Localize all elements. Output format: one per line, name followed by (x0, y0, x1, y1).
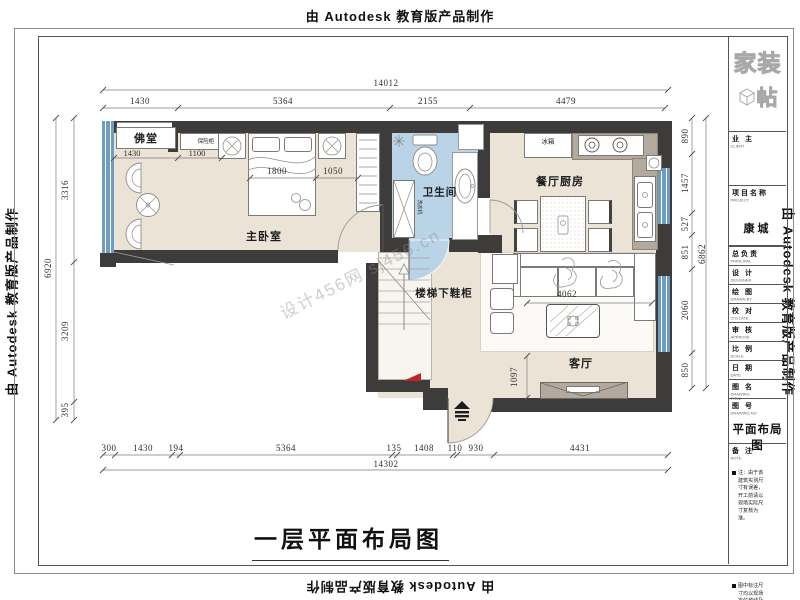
side-seat-2 (490, 312, 514, 334)
sheet-no-label: 图 号 (729, 399, 786, 411)
titleblock-client: 业 主 CLIENT (729, 132, 786, 186)
titleblock-rows: 总负责PRINCIPAL设 计DESIGNER绘 图DRAWN BY校 对COL… (729, 246, 786, 398)
nightstand-left (218, 133, 246, 159)
fridge (524, 133, 572, 158)
titleblock-row: 审 核APPROVE (729, 322, 786, 341)
dining-chair-4 (588, 228, 612, 252)
dining-chair-1 (514, 200, 538, 224)
wall-band-bottom (114, 250, 338, 263)
titleblock-row: 日 期DATE (729, 360, 786, 379)
sofa-seat-1 (520, 267, 558, 297)
titleblock-sheet: 图 号 DRAWING NO 平面布局图 (729, 398, 786, 444)
window-right-2 (658, 276, 670, 352)
note-item: 图中标注尺寸均以现场定位放线及工程实测尺寸为准。 (732, 582, 784, 600)
dining-table (540, 196, 586, 252)
logo-text-bottom: 帖 (757, 82, 779, 112)
client-label: 业 主 (729, 132, 786, 144)
buddha-label-box (116, 127, 176, 149)
plot-stamp-top: 由 Autodesk 教育版产品制作 (306, 6, 494, 25)
sofa-chaise (634, 253, 656, 321)
titleblock-row: 设 计DESIGNER (729, 265, 786, 284)
wardrobe (356, 133, 380, 212)
note-bullet (732, 584, 736, 588)
pillow-left (252, 137, 280, 152)
bath-window-niche (458, 124, 484, 150)
stove (578, 135, 644, 156)
titleblock-project: 项目名称 PROJECT 康城 (729, 186, 786, 246)
project-label: 项目名称 (729, 186, 786, 198)
titleblock-row: 校 对COLLATE (729, 303, 786, 322)
plot-stamp-bottom: 由 Autodesk 教育版产品制作 (306, 578, 494, 597)
sofa-seat-2 (558, 267, 596, 297)
client-label-en: CLIENT (729, 144, 758, 149)
cad-sheet: 由 Autodesk 教育版产品制作 由 Autodesk 教育版产品制作 由 … (0, 0, 800, 600)
titleblock-row: 绘 图DRAWN BY (729, 284, 786, 303)
sink-basin-1 (637, 182, 653, 208)
wall-bath-bottom-right (449, 238, 490, 252)
project-label-en: PROJECT (729, 198, 758, 203)
note-label-en: NOTE (729, 456, 758, 461)
window-right-1 (658, 168, 670, 224)
titleblock-notes: 备 注 NOTE 注：由于该建筑实测尺寸有误差，开工前请以现场实际尺寸复核为准。… (729, 444, 786, 563)
dining-chair-2 (514, 228, 538, 252)
side-table-lamp (492, 254, 518, 284)
titleblock-row: 比 例SCALE (729, 341, 786, 360)
titleblock-row: 图 名DRAWING TITLE (729, 379, 786, 398)
project-value: 康城 (729, 220, 786, 236)
note-text: 图中标注尺寸均以现场定位放线及工程实测尺寸为准。 (738, 582, 764, 600)
title-block: 家装 帖 业 主 CLIENT 项目名称 PROJECT 康城 总负责PRINC… (728, 36, 786, 564)
wall-entry-jog (423, 388, 448, 410)
cube-logo-icon (737, 87, 757, 107)
wall-stair-bottom (366, 378, 430, 392)
note-item: 注：由于该建筑实测尺寸有误差，开工前请以现场实际尺寸复核为准。 (732, 469, 784, 564)
washing-machine (393, 180, 415, 238)
tv (566, 386, 600, 393)
wall-stair-left (366, 263, 378, 392)
wall-living-bottom (488, 398, 672, 412)
titleblock-row: 总负责PRINCIPAL (729, 246, 786, 265)
wall-bedroom-bath (380, 121, 392, 253)
titleblock-logo: 家装 帖 (729, 36, 786, 132)
logo-text-top: 家装 (729, 44, 786, 78)
pillow-right (284, 137, 312, 152)
side-seat-1 (490, 288, 514, 310)
sink-basin-2 (637, 212, 653, 238)
note-text: 注：由于该建筑实测尺寸有误差，开工前请以现场实际尺寸复核为准。 (738, 469, 764, 522)
note-label: 备 注 (729, 444, 786, 456)
drawing-title: 一层平面布局图 (252, 520, 449, 561)
sofa-seat-3 (596, 267, 634, 297)
counter-corner-unit (646, 155, 662, 171)
nightstand-right (318, 133, 346, 159)
bay-window-left (102, 121, 114, 253)
dining-chair-3 (588, 200, 612, 224)
note-bullet (732, 471, 736, 475)
coffee-table (546, 304, 600, 338)
sheet-no-label-en: DRAWING NO (729, 411, 758, 416)
